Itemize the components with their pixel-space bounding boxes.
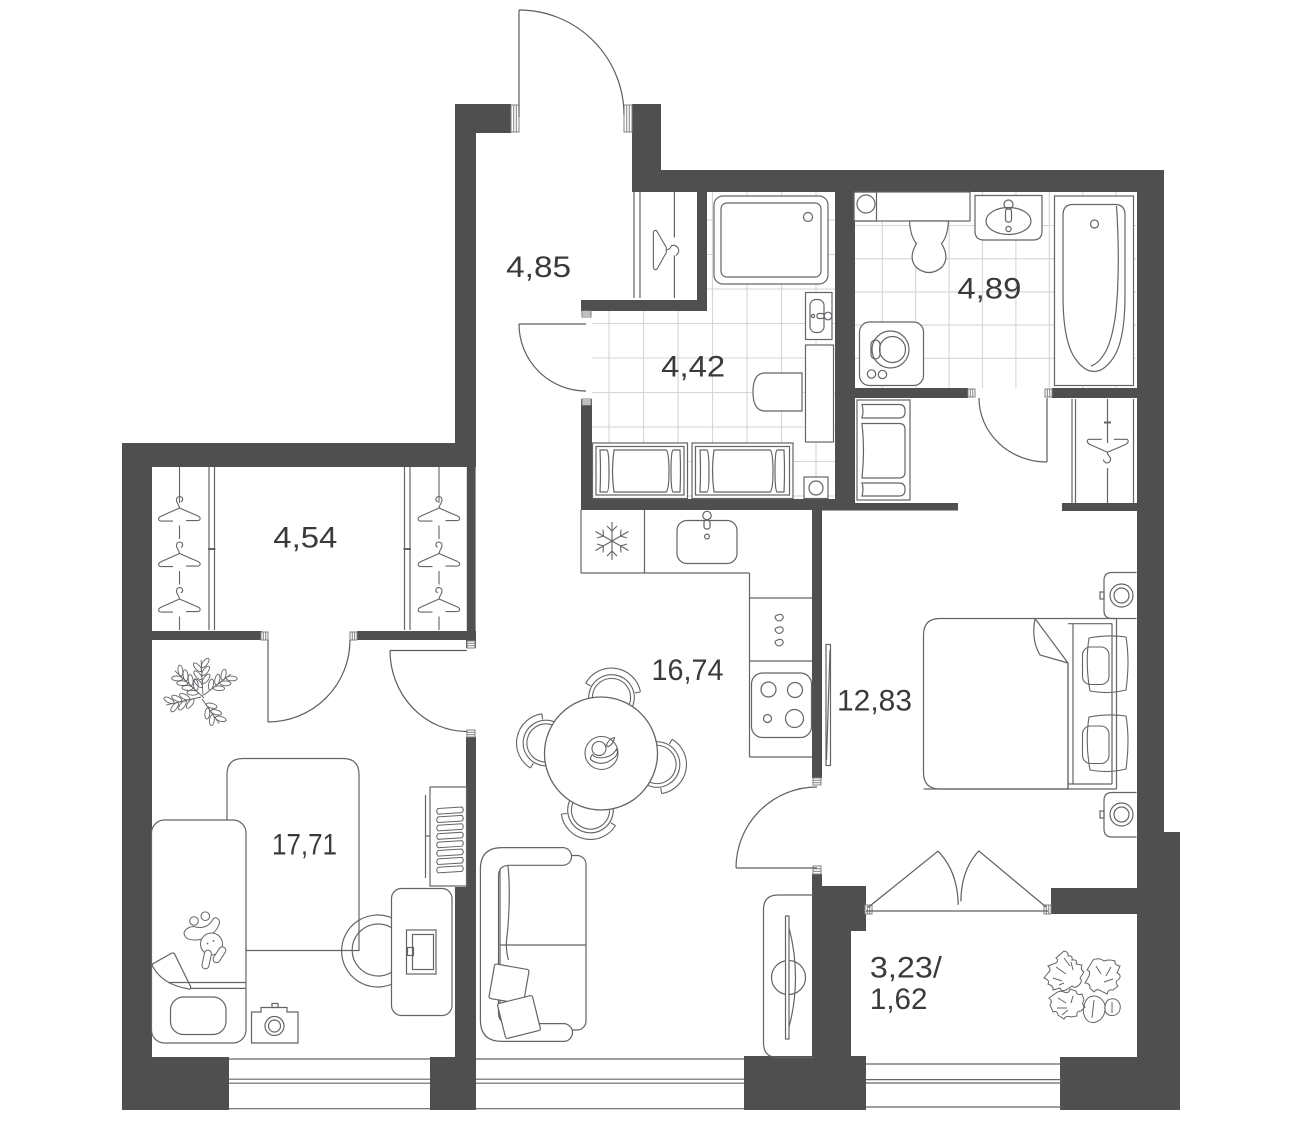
- svg-text:4,54: 4,54: [273, 521, 337, 554]
- svg-text:12,83: 12,83: [837, 685, 912, 718]
- svg-text:4,42: 4,42: [661, 350, 725, 383]
- svg-text:17,71: 17,71: [272, 828, 337, 861]
- svg-text:16,74: 16,74: [652, 654, 724, 687]
- svg-text:4,85: 4,85: [506, 251, 571, 284]
- svg-text:3,23/: 3,23/: [870, 952, 943, 985]
- svg-text:4,89: 4,89: [957, 273, 1021, 306]
- svg-text:1,62: 1,62: [870, 983, 928, 1016]
